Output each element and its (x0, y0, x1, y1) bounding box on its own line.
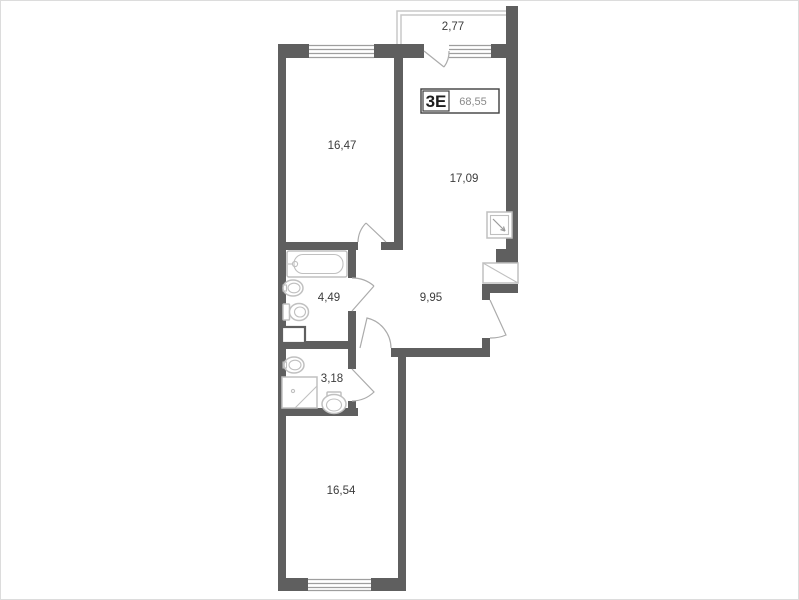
toilet-icon (283, 304, 309, 321)
wall-room2-right (398, 348, 406, 591)
room-area-label-hallway: 9,95 (420, 292, 442, 304)
unit-total-area: 68,55 (459, 96, 487, 108)
vent-shaft-icon (487, 212, 512, 238)
window-kitchen-top (449, 46, 491, 58)
door-balcony (424, 51, 449, 67)
door-wc (352, 369, 374, 401)
wc-toilet-icon (322, 392, 346, 414)
wall-bath-partition-b (348, 311, 356, 369)
door-bathroom (352, 278, 374, 311)
floor-plan: 3Е 68,55 2,77 16,47 17,09 4,49 9,95 3,18… (1, 1, 799, 600)
wall-closet-bottom (482, 284, 518, 293)
bathtub-icon (287, 251, 347, 277)
room-area-label-wc: 3,18 (321, 373, 343, 385)
wall-partition-top-rooms (394, 58, 403, 250)
wall-room1-bottom (278, 242, 358, 250)
room-area-label-room1: 16,47 (328, 140, 357, 152)
room-area-label-kitchen: 17,09 (450, 173, 479, 185)
floor-plan-screen: 3Е 68,55 2,77 16,47 17,09 4,49 9,95 3,18… (0, 0, 799, 600)
shower-icon (282, 377, 317, 408)
wall-wc-bottom (278, 408, 358, 416)
sink-icon (283, 280, 303, 296)
wall-top-mid-block (374, 44, 424, 58)
room-area-label-balcony: 2,77 (442, 21, 464, 33)
room-area-label-room2: 16,54 (327, 485, 356, 497)
duct-shaft-box (282, 327, 305, 343)
unit-label-box: 3Е 68,55 (421, 89, 499, 113)
unit-type-label: 3Е (426, 92, 447, 111)
door-room1 (358, 223, 386, 242)
wall-closet-top-block (496, 249, 518, 264)
wardrobe-icon (483, 263, 518, 283)
room-area-label-bathroom: 4,49 (318, 292, 340, 304)
wall-top-left-block (278, 44, 309, 58)
wc-sink-icon (283, 357, 304, 373)
wall-bath-partition-a (348, 242, 356, 278)
wall-bottom-right-block (371, 578, 404, 591)
door-room2 (360, 318, 391, 348)
wall-bottom-left-block (278, 578, 308, 591)
window-room1-top (309, 46, 374, 58)
wall-entry-stub-upper (482, 293, 490, 300)
window-room2-bottom (308, 580, 371, 591)
door-entrance (490, 300, 506, 338)
wall-room1-door-jamb (381, 242, 403, 250)
